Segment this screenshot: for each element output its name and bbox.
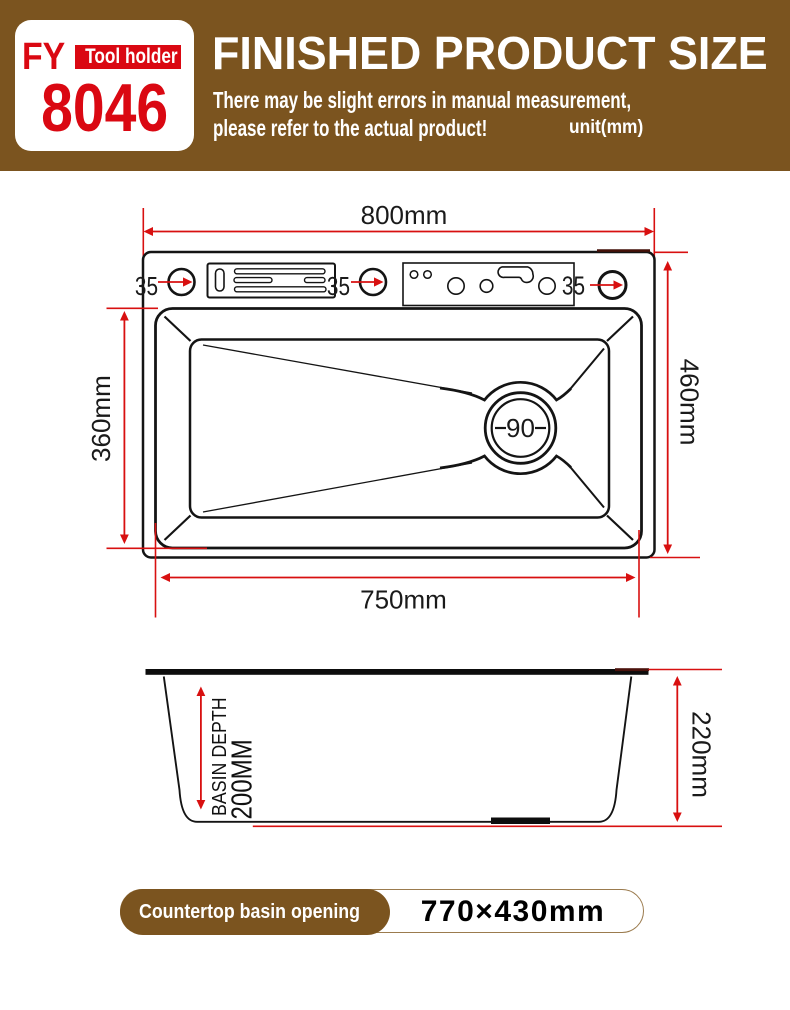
svg-text:35: 35 xyxy=(327,272,350,301)
svg-text:35: 35 xyxy=(135,272,158,301)
svg-text:220mm: 220mm xyxy=(687,711,717,798)
svg-text:800mm: 800mm xyxy=(361,200,448,230)
svg-text:750mm: 750mm xyxy=(360,585,447,615)
svg-text:35: 35 xyxy=(562,271,585,300)
svg-text:200MM: 200MM xyxy=(225,739,258,819)
svg-text:90: 90 xyxy=(506,413,535,443)
svg-text:360mm: 360mm xyxy=(86,375,116,462)
svg-text:460mm: 460mm xyxy=(675,359,705,446)
